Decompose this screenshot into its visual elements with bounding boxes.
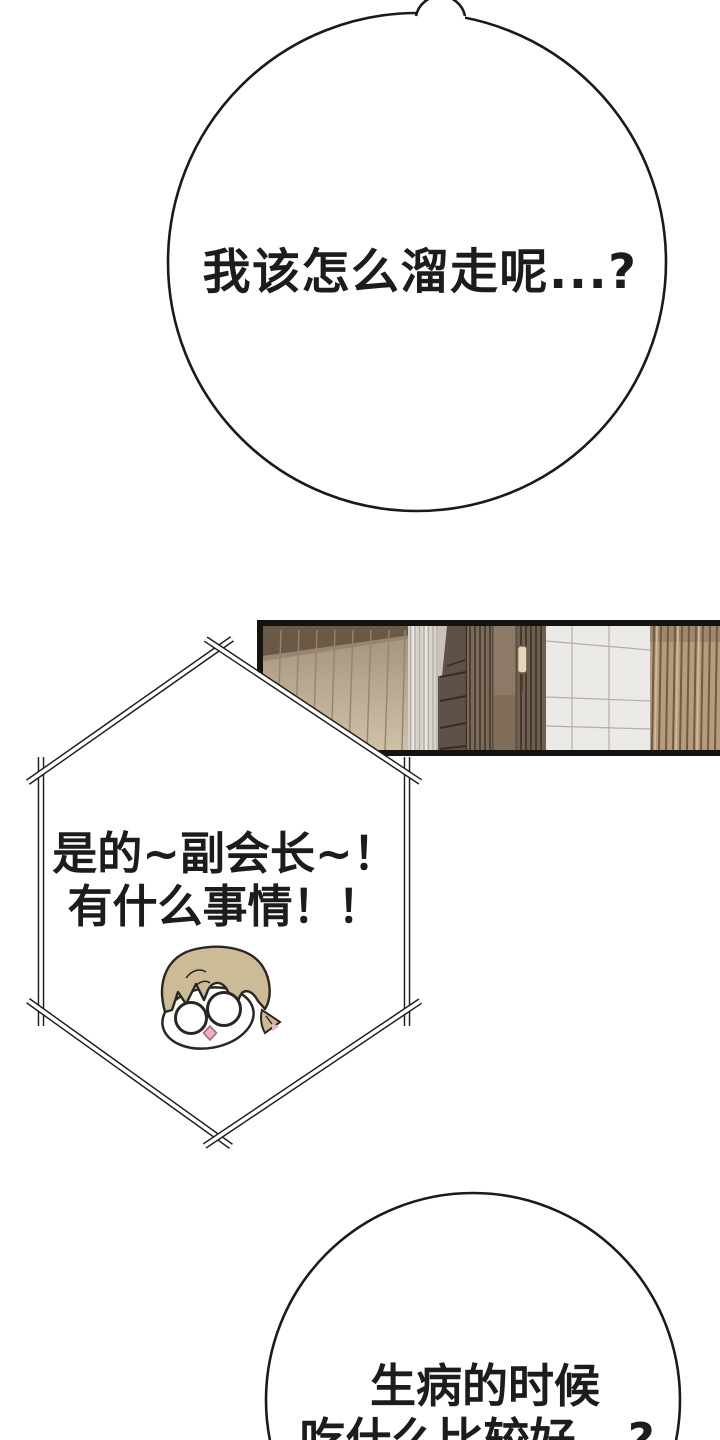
chibi-glasses-right-lens: [208, 993, 241, 1026]
chibi-glasses-left-lens: [176, 1003, 207, 1034]
comic-page: 我该怎么溜走呢...?: [0, 0, 720, 1440]
tile-wall: [546, 626, 650, 750]
thought-bubble-top-bump: [416, 0, 465, 16]
bottom-speech-bubble: 生病的时候 吃什么比较好...?: [266, 1193, 680, 1440]
hexagon-text-line-2: 有什么事情！！: [67, 880, 382, 933]
bottom-bubble-line-1: 生病的时候: [370, 1359, 600, 1413]
hexagon-text-line-1: 是的~副会长~！: [52, 827, 397, 880]
top-thought-bubble: 我该怎么溜走呢...?: [168, 0, 666, 511]
door-handle: [518, 646, 528, 673]
thought-bubble-text: 我该怎么溜走呢...?: [202, 244, 637, 300]
bottom-bubble-line-2: 吃什么比较好...?: [299, 1413, 654, 1440]
